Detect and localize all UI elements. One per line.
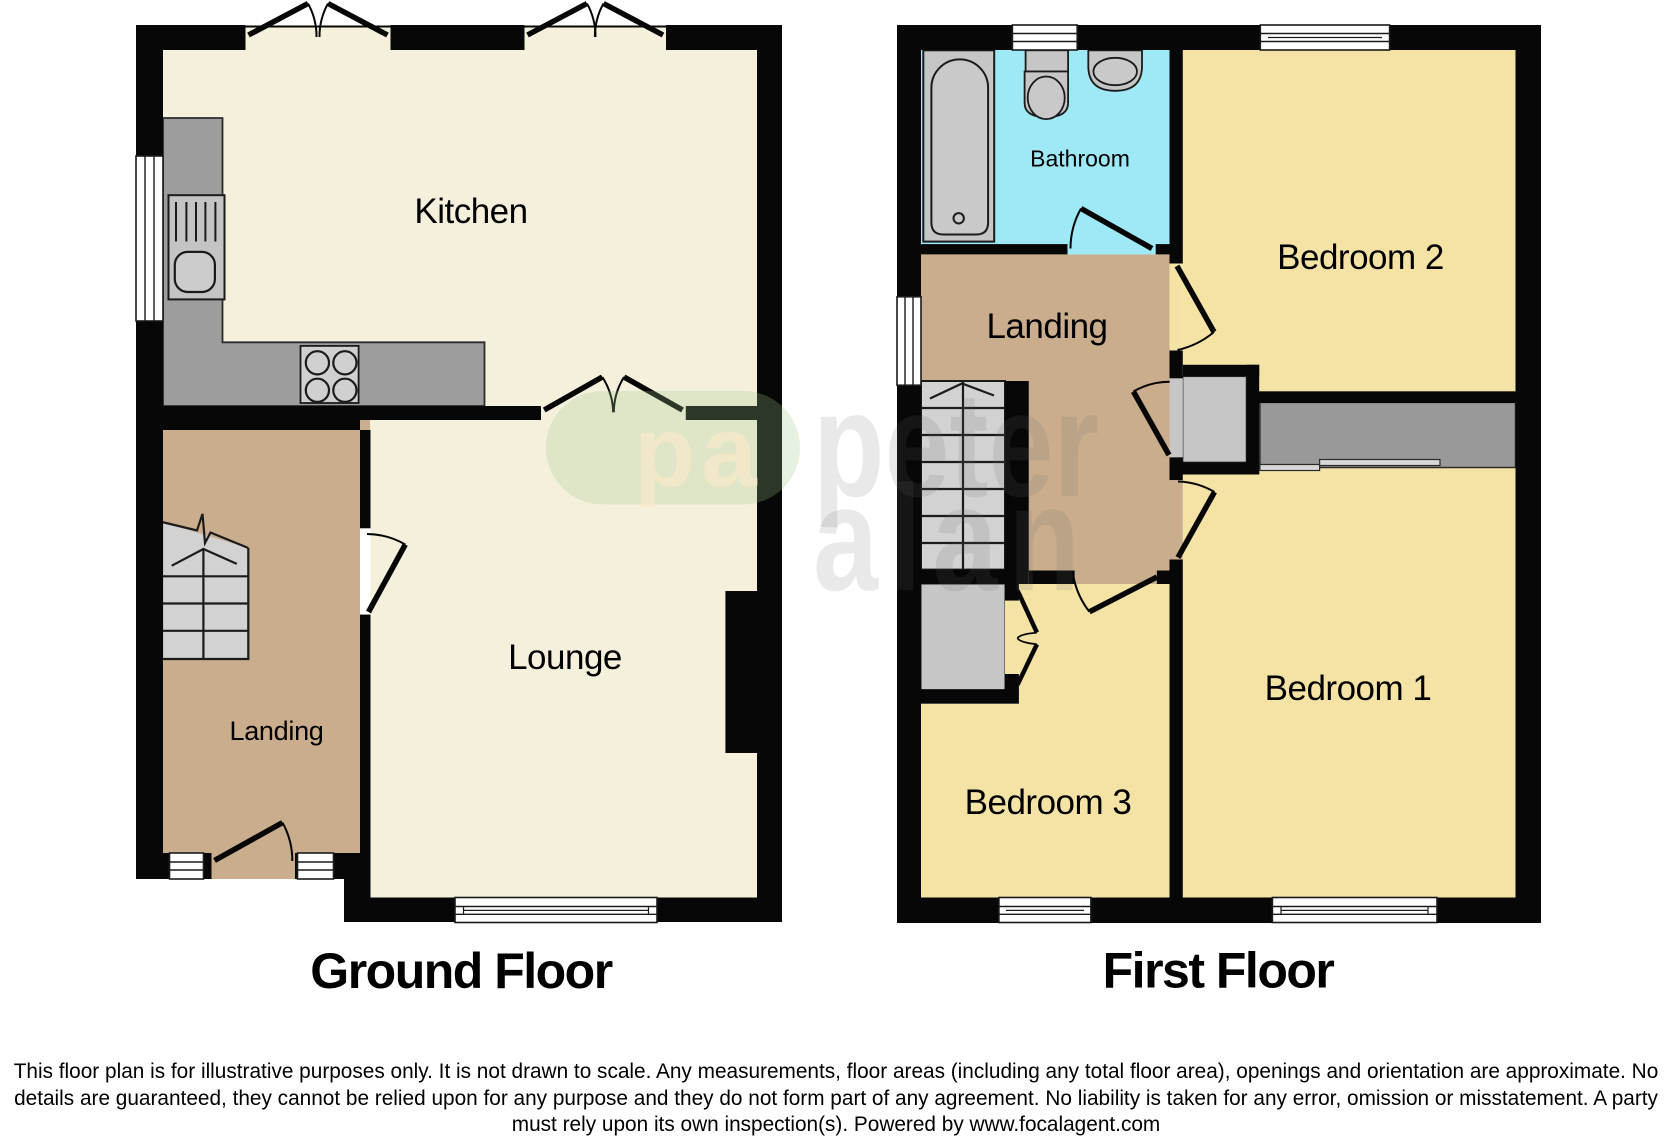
svg-text:Bedroom 3: Bedroom 3	[965, 783, 1132, 822]
svg-text:Lounge: Lounge	[508, 638, 622, 677]
svg-text:Bedroom 1: Bedroom 1	[1265, 669, 1432, 708]
svg-text:alan: alan	[813, 454, 1091, 622]
svg-text:Bathroom: Bathroom	[1030, 146, 1130, 172]
svg-text:Landing: Landing	[986, 307, 1107, 346]
svg-text:details are guaranteed, they c: details are guaranteed, they cannot be r…	[14, 1087, 1658, 1110]
svg-text:First Floor: First Floor	[1103, 943, 1335, 999]
svg-text:Ground Floor: Ground Floor	[310, 943, 612, 999]
svg-text:Landing: Landing	[230, 716, 324, 746]
svg-text:This floor plan is for illustr: This floor plan is for illustrative purp…	[14, 1060, 1659, 1083]
svg-text:must rely upon its own inspect: must rely upon its own inspection(s). Po…	[512, 1113, 1160, 1136]
svg-text:Bedroom 2: Bedroom 2	[1277, 238, 1444, 277]
svg-text:Kitchen: Kitchen	[414, 192, 527, 231]
svg-text:pa: pa	[634, 396, 763, 508]
